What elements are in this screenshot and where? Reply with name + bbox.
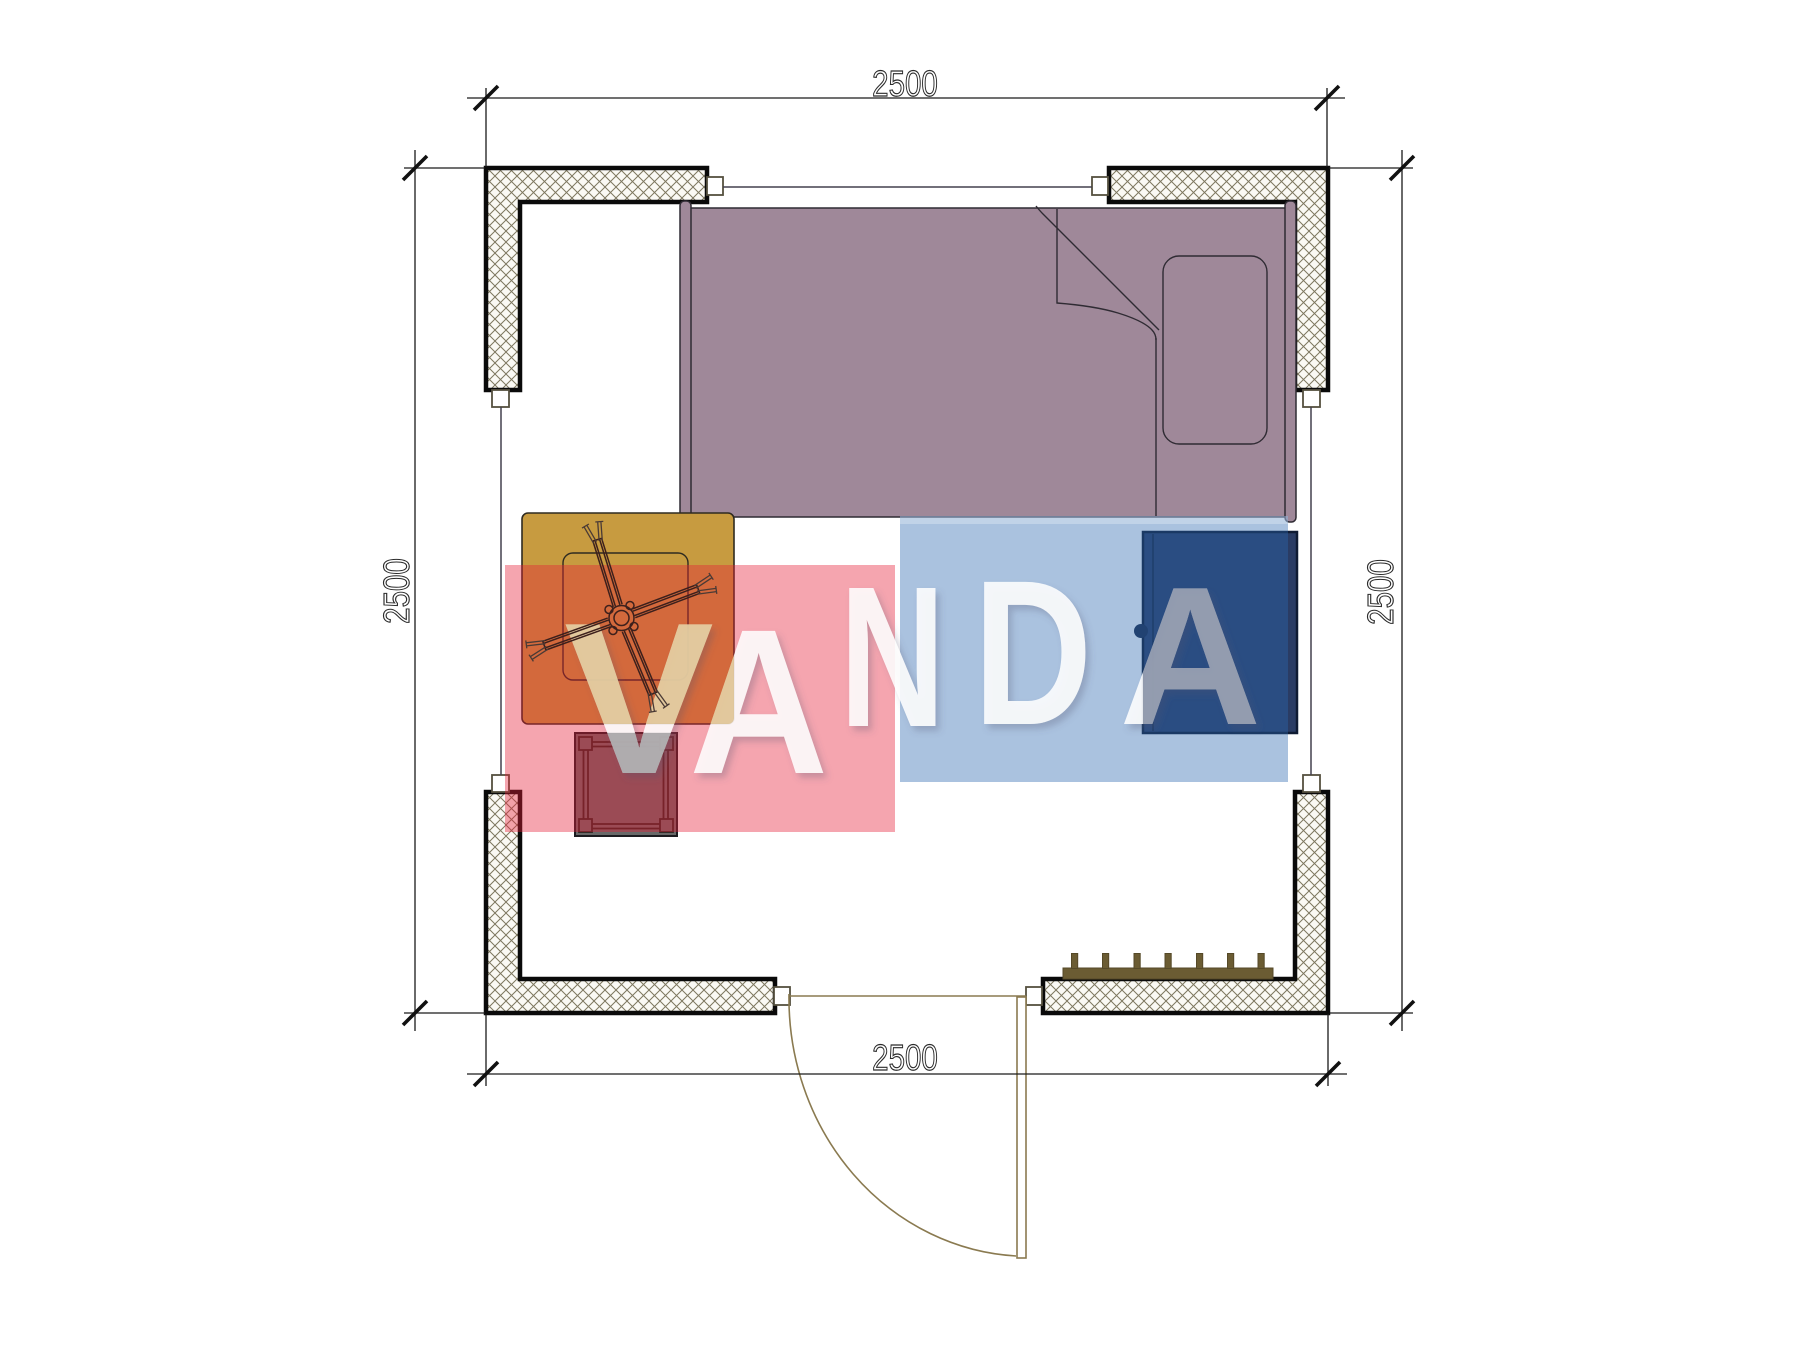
svg-text:2500: 2500 [872,63,938,103]
svg-text:2500: 2500 [872,1037,938,1077]
svg-text:2500: 2500 [376,558,416,624]
svg-text:2500: 2500 [1360,559,1400,625]
